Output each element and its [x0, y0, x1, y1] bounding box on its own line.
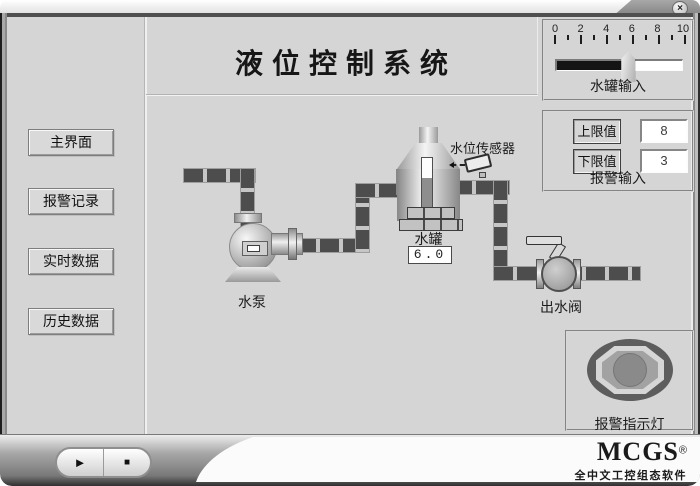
tank-neck — [419, 127, 438, 143]
valve-handle[interactable] — [526, 236, 562, 245]
sensor-leg — [479, 172, 486, 178]
sidebar-item-realtime-data[interactable]: 实时数据 — [28, 248, 114, 275]
page-title: 液位控制系统 — [226, 42, 457, 94]
tick-mark — [619, 35, 621, 40]
tick-mark — [580, 35, 582, 44]
brand-name: MCGS — [597, 437, 679, 466]
pump-label: 水泵 — [220, 292, 284, 312]
alarm-input-label: 报警输入 — [544, 168, 692, 188]
mcgs-runtime-window: × 主界面 报警记录 实时数据 历史数据 液位控制系统 0246810 水罐输入… — [0, 0, 700, 486]
scale-label: 0 — [552, 23, 558, 35]
tick-mark — [645, 35, 647, 40]
tick-mark — [593, 35, 595, 40]
pump-window — [242, 241, 268, 256]
slider-fill — [557, 61, 628, 70]
stop-icon[interactable]: ■ — [104, 449, 150, 476]
brand-subtitle: 全中文工控组态软件 — [575, 467, 688, 483]
alarm-indicator-label: 报警指示灯 — [565, 414, 694, 434]
upper-limit-button[interactable]: 上限值 — [573, 119, 621, 144]
upper-limit-field[interactable]: 8 — [640, 119, 688, 143]
scale-label: 10 — [677, 23, 689, 35]
tank-pedestal-brick-row — [407, 207, 455, 219]
title-box: 液位控制系统 — [146, 17, 538, 95]
tick-mark — [554, 35, 556, 44]
sensor-label: 水位传感器 — [450, 138, 542, 157]
runtime-controls: ► ■ — [55, 447, 152, 478]
tick-mark — [606, 35, 608, 44]
window-top-strip — [0, 0, 700, 13]
pump-inlet-flange — [234, 213, 262, 223]
tick-mark — [567, 35, 569, 40]
main-content: 主界面 报警记录 实时数据 历史数据 液位控制系统 0246810 水罐输入 上… — [7, 17, 693, 434]
window-frame-left — [0, 13, 7, 434]
pump-outlet-pipe — [271, 233, 303, 255]
tank-level-gauge — [421, 157, 433, 209]
sidebar-item-alarm-log[interactable]: 报警记录 — [28, 188, 114, 215]
play-icon[interactable]: ► — [57, 449, 104, 476]
alarm-lamp-icon — [613, 353, 647, 387]
registered-mark-icon: ® — [679, 445, 687, 457]
pump-base — [225, 267, 281, 282]
slider-ticks — [555, 35, 685, 45]
pump-window-inner — [247, 245, 260, 252]
alarm-input-panel: 上限值 8 下限值 3 报警输入 — [542, 110, 694, 192]
scale-label: 6 — [629, 23, 635, 35]
scale-label: 2 — [578, 23, 584, 35]
scale-label: 4 — [603, 23, 609, 35]
tank-input-label: 水罐输入 — [544, 76, 692, 96]
tick-mark — [684, 35, 686, 44]
window-frame-right — [693, 13, 700, 434]
runtime-bar: ► ■ MCGS® 全中文工控组态软件 — [0, 434, 700, 486]
sidebar-item-history-data[interactable]: 历史数据 — [28, 308, 114, 335]
tick-mark — [632, 35, 634, 44]
tank-input-slider-track[interactable] — [555, 59, 683, 71]
tick-mark — [658, 35, 660, 44]
tank-input-panel: 0246810 水罐输入 — [542, 19, 694, 101]
tank-level-fill — [422, 178, 432, 208]
outlet-valve[interactable] — [541, 256, 577, 292]
sensor-arrow-icon — [451, 164, 465, 166]
valve-label: 出水阀 — [529, 297, 593, 317]
tank-level-readout: 6.0 — [408, 246, 452, 264]
tick-mark — [671, 35, 673, 40]
slider-scale-labels: 0246810 — [555, 23, 683, 35]
scale-label: 8 — [654, 23, 660, 35]
sidebar-item-main-screen[interactable]: 主界面 — [28, 129, 114, 156]
brand-logo: MCGS® 全中文工控组态软件 — [575, 440, 688, 483]
pump-outlet-flange — [288, 228, 297, 260]
